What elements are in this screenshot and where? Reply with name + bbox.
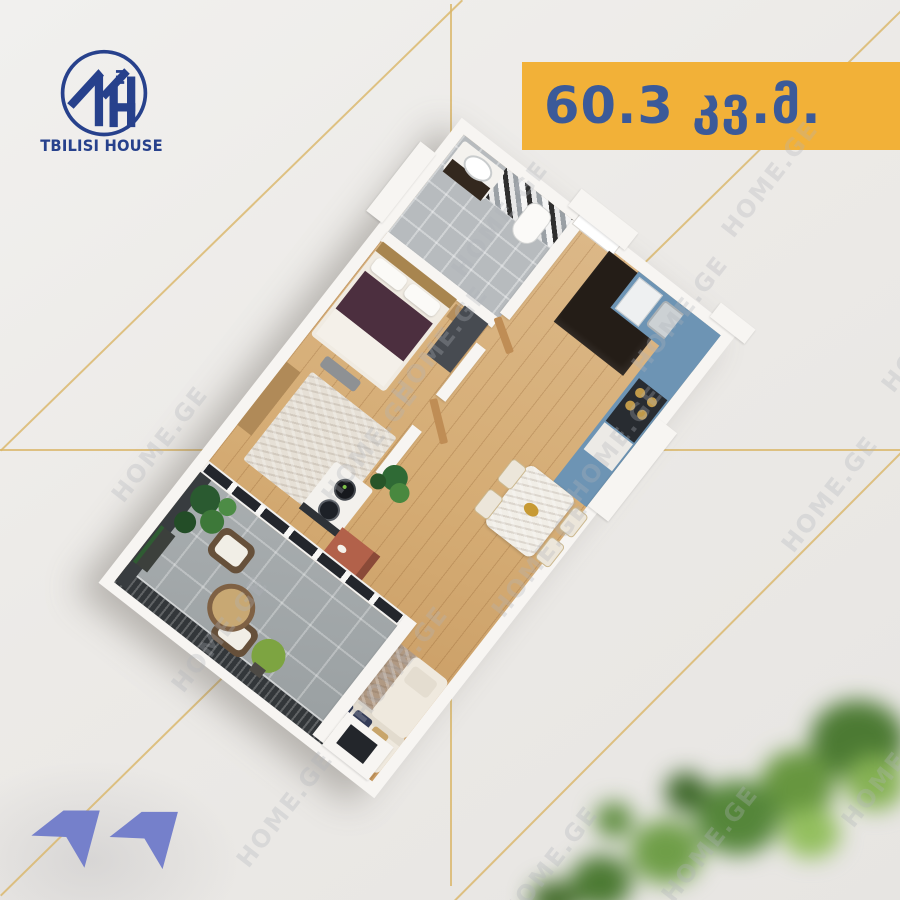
poster-canvas: HOME.GEHOME.GEHOME.GEHOME.GEHOME.GEHOME.… <box>0 0 900 900</box>
area-banner: 60.3 კვ.მ. <box>522 62 900 150</box>
area-value: 60.3 <box>544 77 674 136</box>
area-unit: კვ.მ. <box>692 77 822 136</box>
tbilisi-house-logo: TBILISI HOUSE <box>55 46 245 161</box>
blurred-plant <box>520 680 900 900</box>
logo-name: TBILISI HOUSE <box>40 136 160 155</box>
th-monogram-icon <box>58 48 150 140</box>
bottom-brand-icon <box>30 795 180 877</box>
watermark-text: HOME.GE <box>876 270 900 398</box>
watermark-text: HOME.GE <box>231 745 339 873</box>
